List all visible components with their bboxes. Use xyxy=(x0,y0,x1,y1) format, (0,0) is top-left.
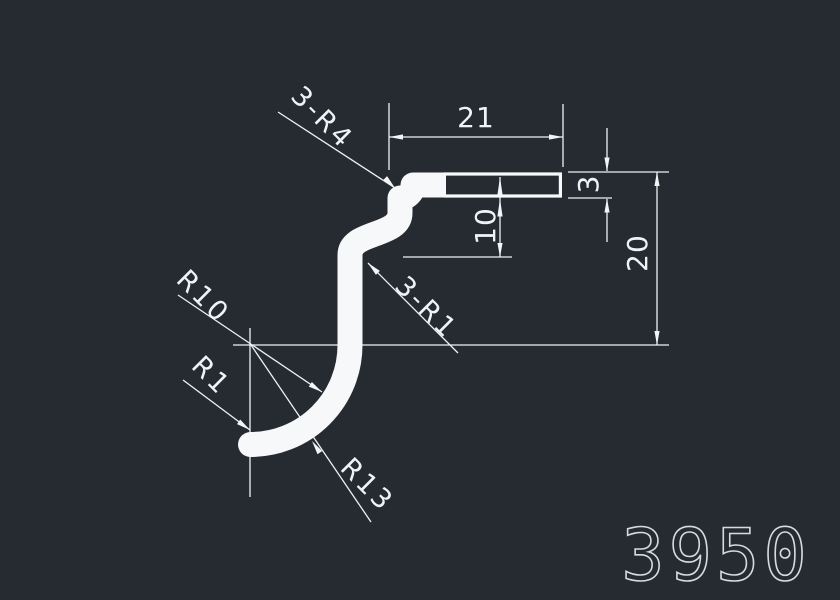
part-number: 3950 xyxy=(621,513,810,597)
dimension-10-label: 10 xyxy=(472,207,500,245)
arrow-r10 xyxy=(309,382,322,392)
cad-viewport[interactable]: 21 3 10 20 3-R4 3-R1 R10 R1 R13 3950 xyxy=(0,0,840,600)
arrow-10-top-inner xyxy=(497,177,502,195)
profile-tip-round-end xyxy=(238,432,263,457)
arrow-10-bottom xyxy=(497,243,502,257)
dimension-3-label: 3 xyxy=(575,175,603,194)
arrow-3-bottom xyxy=(604,199,609,213)
dimension-20-label: 20 xyxy=(624,234,652,272)
arrow-20-bottom xyxy=(654,331,659,345)
arrow-21-right xyxy=(549,134,563,139)
arrow-20-top xyxy=(654,172,659,186)
arrow-3-top xyxy=(604,158,609,172)
profile-solid-band xyxy=(238,185,446,457)
arrow-21-left xyxy=(389,134,403,139)
dimension-21-label: 21 xyxy=(457,104,495,132)
